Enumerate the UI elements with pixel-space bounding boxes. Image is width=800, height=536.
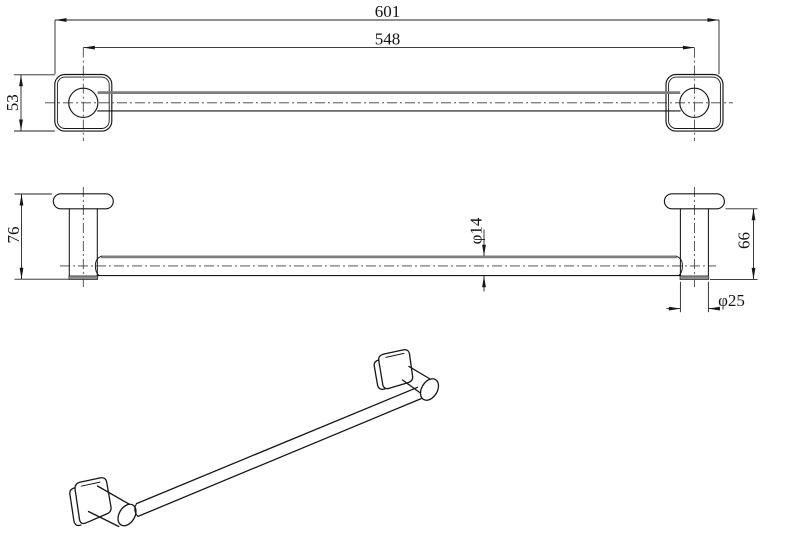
dim-post-depth: 66	[710, 209, 758, 280]
dim-arrow	[752, 209, 756, 221]
dim-arrow	[55, 18, 67, 22]
dim-overall-width-label: 601	[375, 2, 401, 21]
isometric-view	[70, 350, 442, 529]
dim-overall-depth-label: 76	[4, 227, 23, 244]
left-post-base	[69, 276, 98, 280]
iso-left-plate	[70, 478, 111, 526]
dim-overall-depth: 76	[4, 194, 68, 279]
dim-arrow	[19, 75, 23, 87]
dim-arrow	[708, 18, 720, 22]
drawing-canvas: 601 548 53	[0, 0, 800, 536]
dim-bar-diameter: φ14	[467, 217, 486, 291]
dim-arrow	[752, 268, 756, 280]
right-post-base	[680, 276, 709, 280]
dim-post-spacing-label: 548	[375, 30, 401, 49]
top-view: 76 66 φ14 φ25	[4, 187, 757, 312]
dim-arrow	[669, 307, 681, 311]
towel-bar-front	[98, 93, 681, 111]
iso-towel-bar	[135, 387, 421, 516]
dim-post-diameter: φ25	[667, 282, 745, 312]
dim-arrow	[19, 120, 23, 132]
dim-post-diameter-label: φ25	[718, 291, 745, 310]
dim-arrow	[482, 245, 486, 256]
dim-post-depth-label: 66	[735, 232, 754, 249]
dim-post-spacing: 548	[83, 30, 694, 50]
dim-plate-size-label: 53	[3, 94, 22, 111]
technical-drawing: 601 548 53	[0, 0, 800, 536]
front-view: 601 548 53	[3, 2, 733, 141]
dim-arrow	[683, 46, 695, 50]
dim-bar-diameter-label: φ14	[467, 217, 486, 244]
dim-arrow	[20, 194, 24, 206]
centerlines-front	[45, 48, 733, 141]
centerlines-top	[60, 187, 716, 287]
dim-arrow	[83, 46, 95, 50]
dim-arrow	[20, 268, 24, 280]
dim-arrow	[482, 276, 486, 288]
